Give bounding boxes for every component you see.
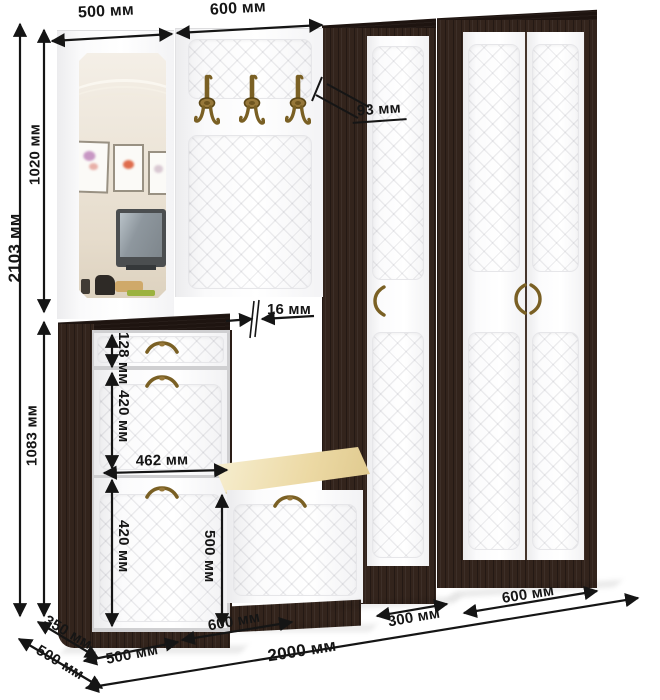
dim-label-hook-width: 600 мм [198,0,279,20]
quilt-pattern [372,46,424,280]
picture-frame [79,140,110,193]
bag-reflection [95,275,115,295]
dim-label-mirror-width: 500 мм [66,1,147,23]
thickness-tick [250,301,254,338]
dim-label-side-depth: 93 мм [351,99,406,124]
quilt-pattern [468,44,520,272]
picture-frame [148,151,166,195]
quilt-pattern [233,504,357,596]
dim-label-narrow-width: 300 мм [373,602,455,633]
dim-label-total-height: 2103 мм [5,210,25,286]
dim-label-panel-thickness: 16 мм [264,301,314,318]
hook-panel [175,28,323,297]
mirror-panel [57,30,174,319]
dim-label-drawer-height: 128 мм [115,332,132,385]
dim-label-lower-height: 1083 мм [24,398,41,474]
thickness-tick [255,300,259,337]
bow-handle-icon [529,282,542,316]
bow-handle-icon [373,284,386,318]
dim-label-total-width: 2000 мм [249,633,355,669]
bow-handle-icon [272,495,308,508]
shelf-items [81,279,90,294]
dim-label-upper-flap: 420 мм [115,390,132,443]
dim-label-bench-height: 500 мм [201,530,218,583]
dim-label-lower-flap: 420 мм [115,520,132,573]
quilt-pattern [532,332,579,550]
picture-frame [113,144,144,192]
tray-reflection [127,290,155,296]
dim-label-upper-height: 1020 мм [27,117,44,193]
bow-handle-icon [144,375,180,388]
mirror [79,53,166,298]
dim-label-inner-width: 462 мм [120,451,204,470]
bow-handle-icon [144,341,180,354]
quilt-pattern [188,135,312,289]
shoe-cabinet-side [58,324,94,648]
coat-hook-icon [194,74,220,132]
coat-hook-icon [239,74,265,132]
quilt-pattern [468,332,520,550]
tv-reflection [116,209,166,267]
furniture-dimension-diagram: 500 мм 600 мм 2103 мм 1020 мм 1083 мм 93… [0,0,660,700]
bow-handle-icon [144,486,180,499]
coat-hook-icon [285,74,311,132]
quilt-pattern [532,44,579,272]
quilt-pattern [372,332,424,558]
bow-handle-icon [514,282,527,316]
